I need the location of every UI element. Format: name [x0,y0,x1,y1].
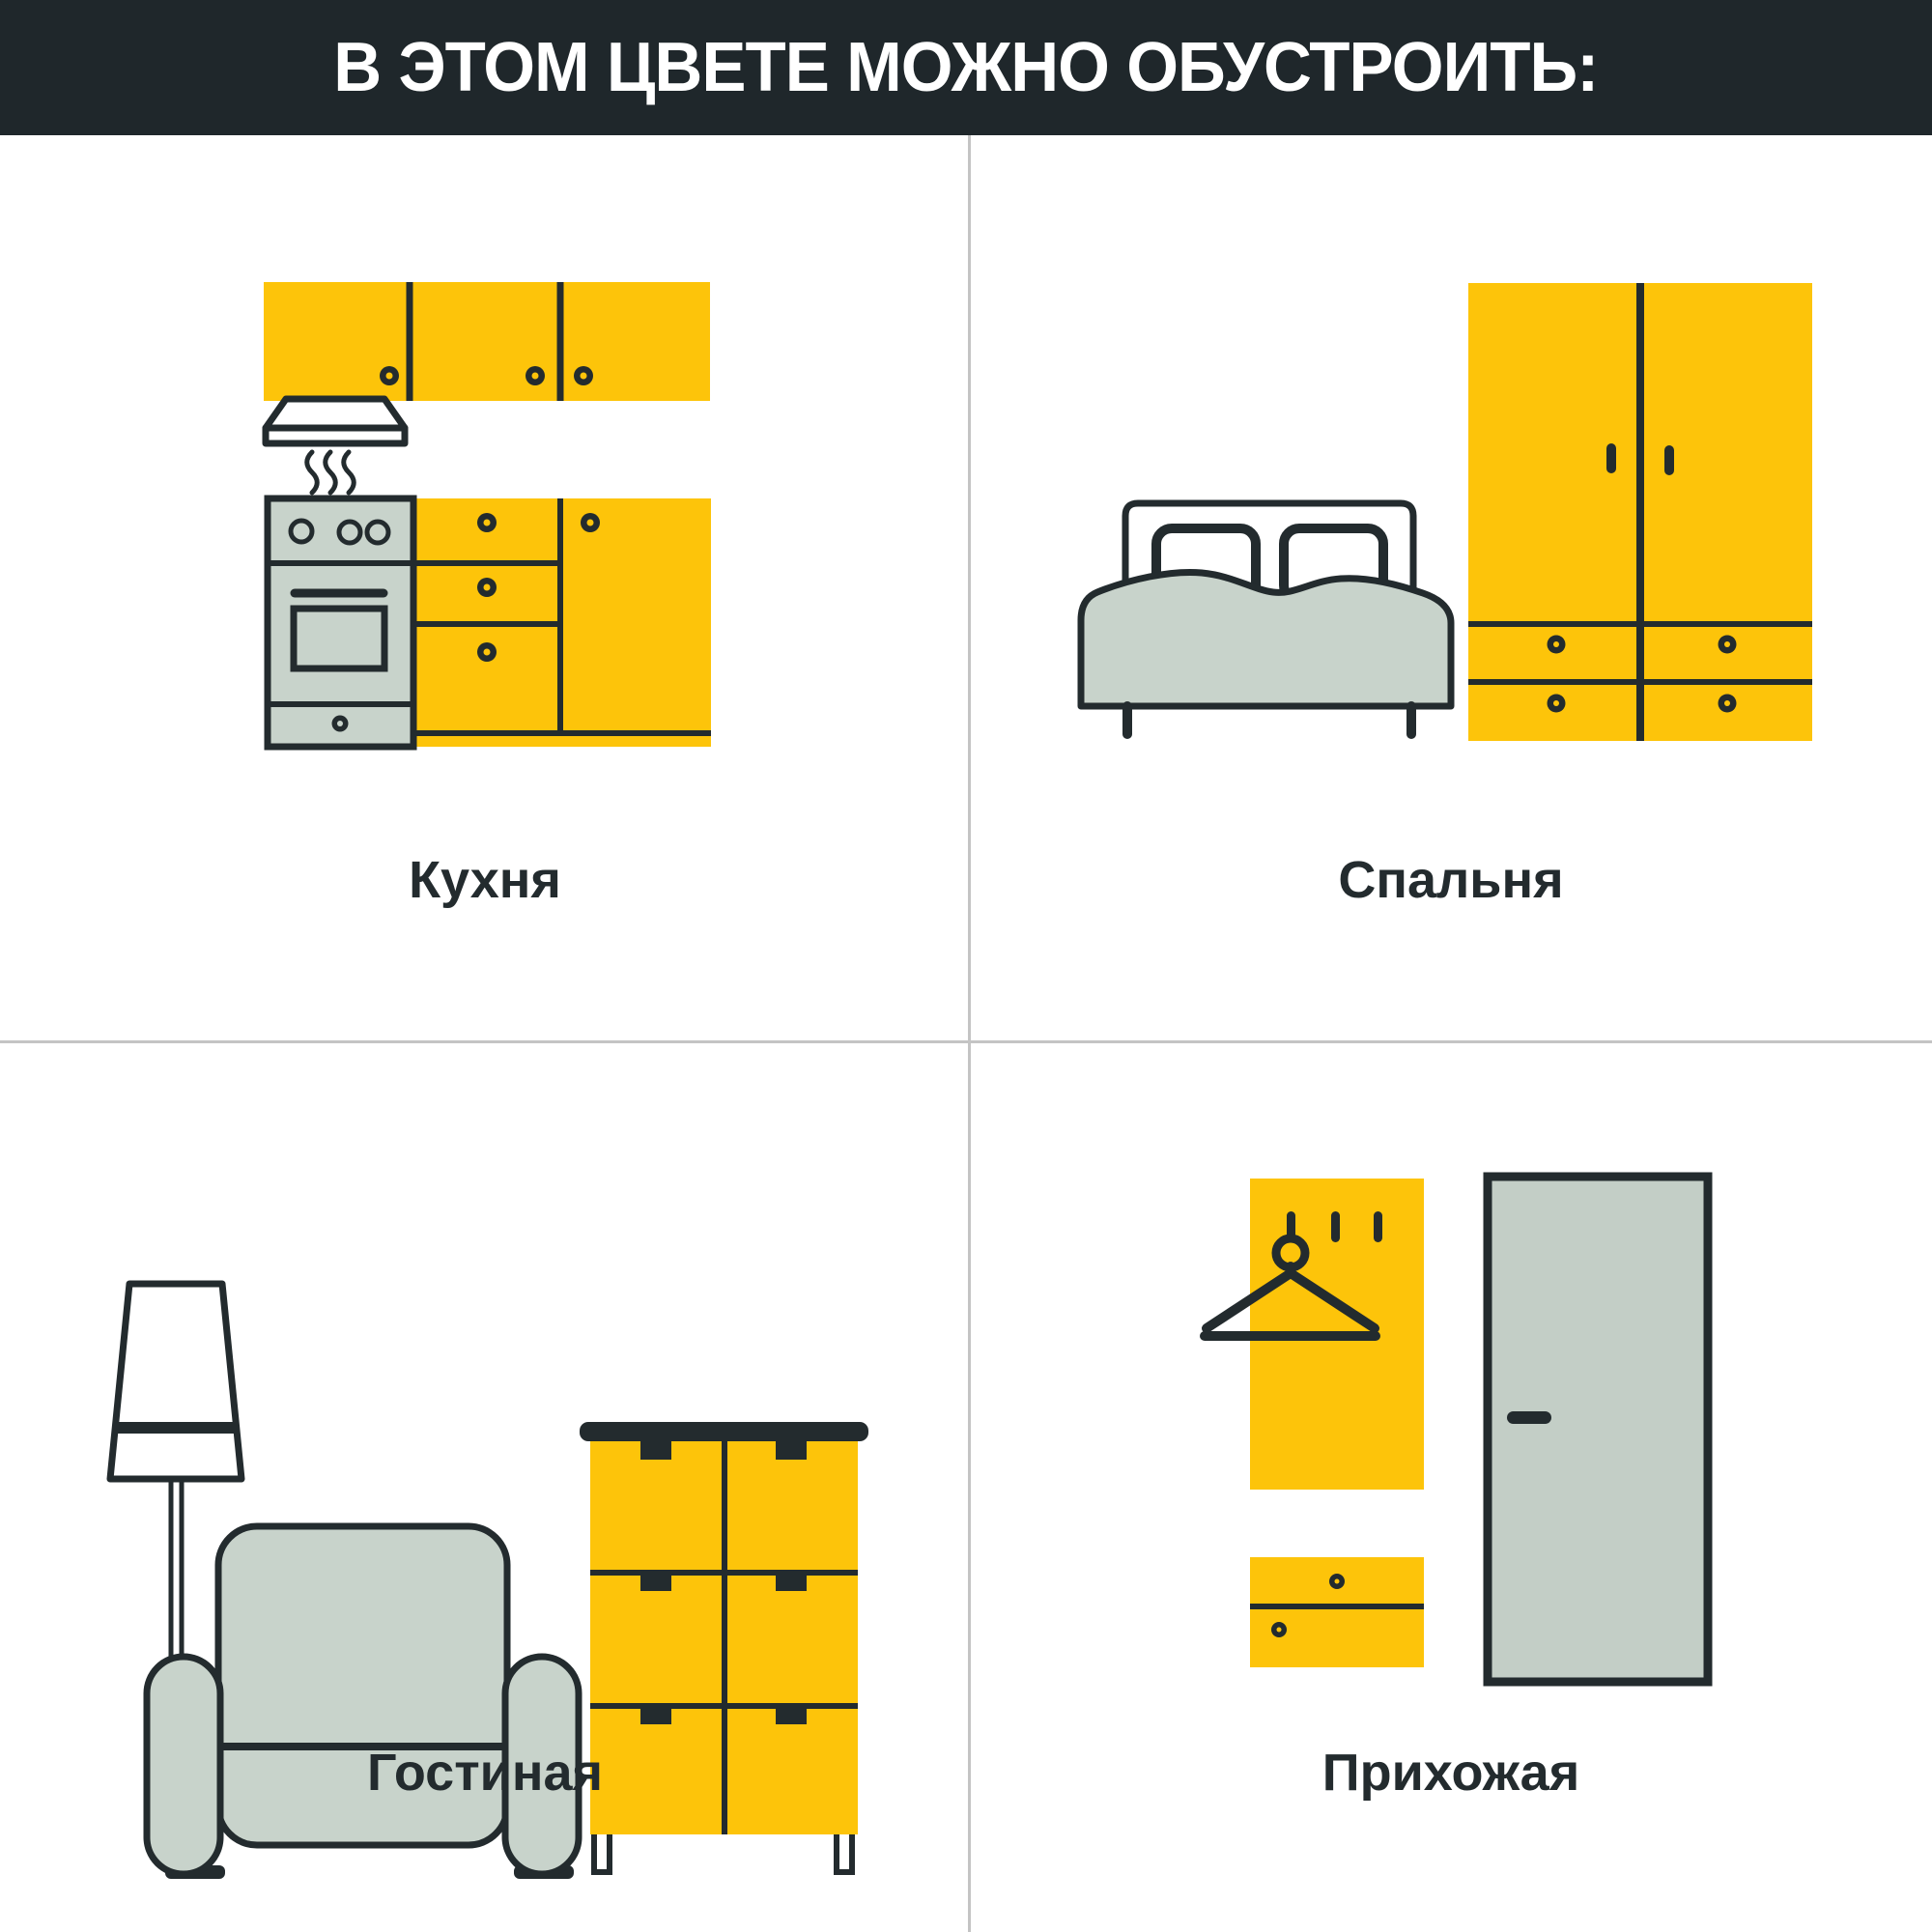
room-label-hallway: Прихожая [970,1743,1932,1803]
wardrobe-icon [1468,283,1812,741]
door-icon [1488,1177,1708,1682]
stove-icon [268,498,413,747]
shoe-cabinet-icon [1250,1557,1424,1667]
header-banner: В ЭТОМ ЦВЕТЕ МОЖНО ОБУСТРОИТЬ: [0,0,1932,135]
quadrant-hallway: Прихожая [970,1041,1932,1932]
range-hood-icon [266,399,405,493]
room-label-living-room: Гостиная [0,1743,970,1803]
wall-cabinets-icon [264,282,710,401]
infographic-canvas: В ЭТОМ ЦВЕТЕ МОЖНО ОБУСТРОИТЬ: [0,0,1932,1932]
room-label-kitchen: Кухня [0,850,970,910]
header-title: В ЭТОМ ЦВЕТЕ МОЖНО ОБУСТРОИТЬ: [333,28,1598,107]
armchair-icon [147,1526,579,1879]
quadrant-kitchen: Кухня [0,135,970,1041]
bed-icon [1081,503,1451,734]
quadrant-bedroom: Спальня [970,135,1932,1041]
base-cabinets-icon [413,498,711,747]
room-label-bedroom: Спальня [970,850,1932,910]
quadrant-living-room: Гостиная [0,1041,970,1932]
dresser-icon [580,1422,868,1872]
